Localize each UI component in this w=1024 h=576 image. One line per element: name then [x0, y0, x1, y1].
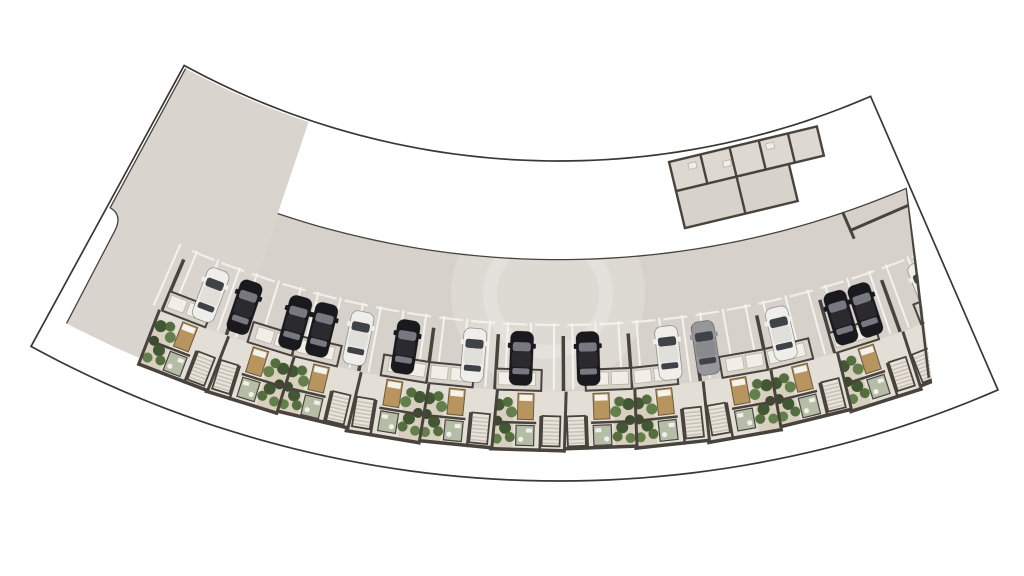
- car-roof: [578, 351, 597, 368]
- car-rear-window: [580, 368, 597, 375]
- parked-car-group: [506, 331, 536, 386]
- car-roof: [695, 340, 716, 359]
- bathroom: [443, 420, 463, 442]
- parked-car-group: [573, 331, 603, 386]
- car-roof: [512, 351, 532, 368]
- car-mirror: [598, 343, 602, 348]
- bathroom: [301, 395, 323, 419]
- car-roof: [395, 339, 416, 358]
- closet-box: [725, 356, 744, 372]
- bed-pillow: [595, 394, 608, 400]
- car-windshield: [465, 339, 484, 350]
- car-mirror: [508, 343, 512, 348]
- closet-box: [634, 369, 652, 384]
- closet-box: [430, 365, 448, 380]
- bathroom: [593, 425, 612, 446]
- bathroom: [658, 419, 678, 441]
- car-rear-window: [512, 368, 529, 375]
- parking-wall-stub: [562, 336, 566, 391]
- site-plan-page: [0, 0, 1024, 576]
- car-windshield: [579, 342, 597, 352]
- closet-box: [722, 160, 731, 168]
- closet-box: [688, 162, 697, 170]
- bathroom: [378, 411, 399, 434]
- stall-line-group: [553, 323, 555, 390]
- bathroom: [798, 394, 820, 418]
- bathroom: [516, 425, 535, 446]
- car-mirror: [532, 344, 536, 349]
- sink: [455, 424, 461, 429]
- bed-pillow: [450, 390, 464, 397]
- stall-stub-group: [562, 336, 566, 391]
- parking-stall-line: [553, 323, 555, 390]
- closet-box: [611, 371, 628, 385]
- car-roof: [658, 345, 679, 363]
- parked-car: [573, 331, 603, 386]
- sink: [595, 428, 601, 432]
- car-roof: [463, 347, 483, 365]
- sink: [526, 428, 532, 432]
- car-mirror: [460, 339, 464, 344]
- sink: [668, 423, 674, 428]
- closet-box: [745, 353, 764, 369]
- car-windshield: [513, 342, 531, 352]
- stall-dash-group: [535, 324, 559, 326]
- site-plan-svg: [0, 0, 1024, 576]
- car-mirror: [677, 336, 681, 341]
- car-mirror: [485, 341, 489, 346]
- car-mirror: [653, 339, 657, 344]
- closet-box: [766, 142, 775, 150]
- bed-pillow: [519, 395, 532, 401]
- stall-front-dash: [535, 324, 559, 326]
- car-mirror: [574, 344, 578, 349]
- bathroom: [734, 408, 755, 431]
- parked-car: [506, 331, 536, 386]
